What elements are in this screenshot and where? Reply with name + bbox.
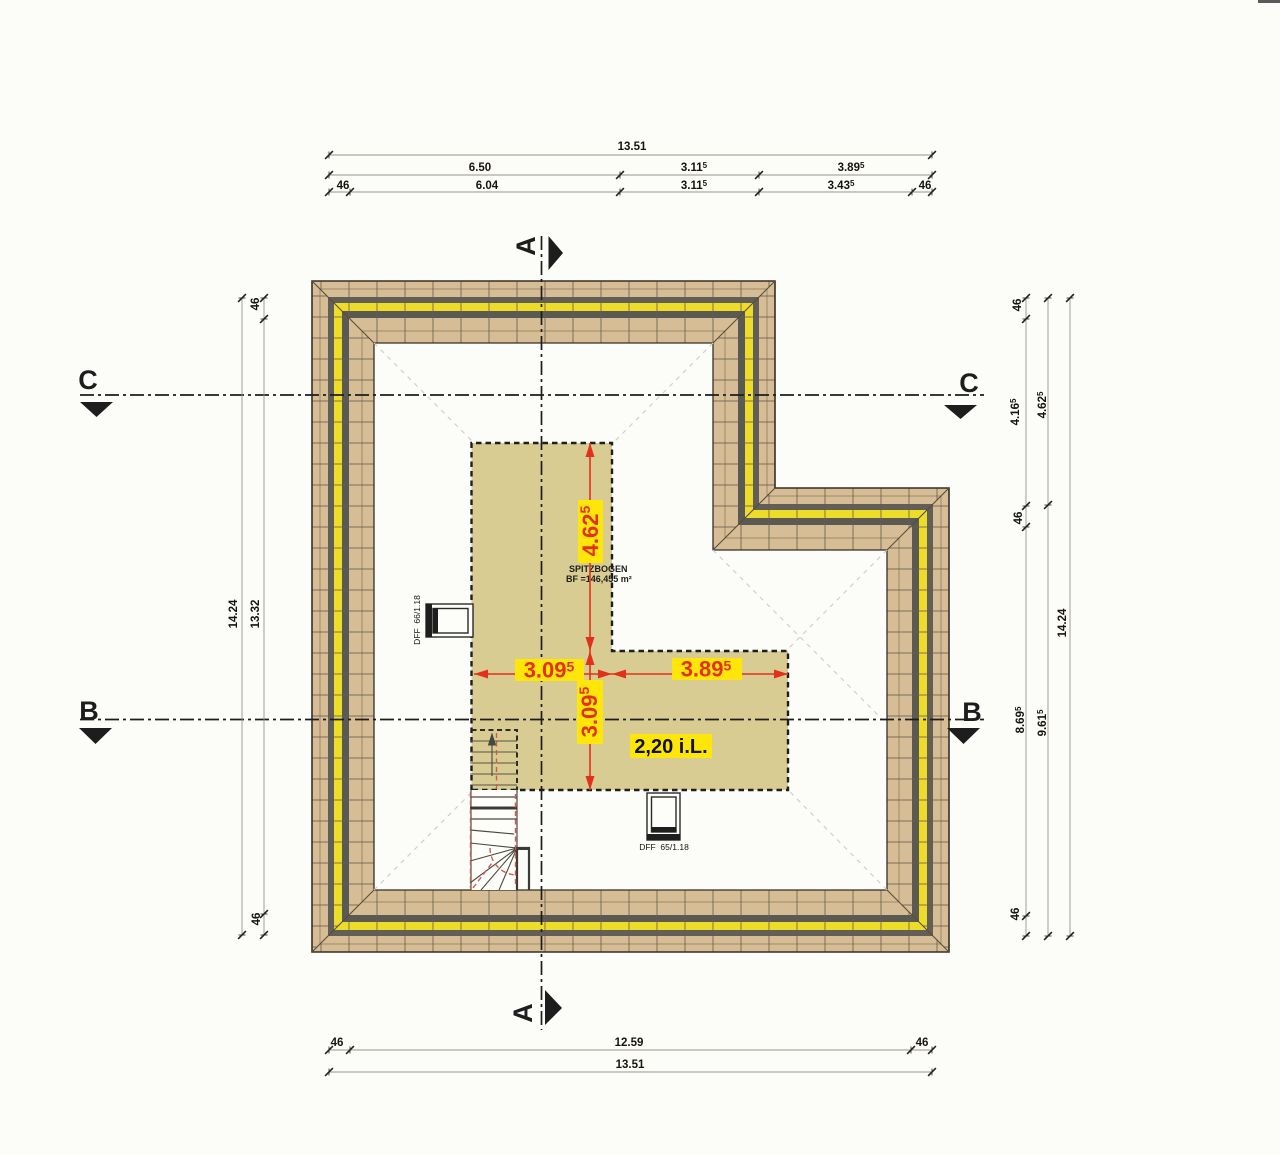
svg-text:6.04: 6.04 (476, 180, 499, 192)
svg-text:14.24: 14.24 (228, 599, 240, 628)
svg-text:13.32: 13.32 (250, 600, 262, 629)
svg-text:46: 46 (1012, 299, 1024, 312)
svg-text:46: 46 (916, 1037, 929, 1049)
svg-text:B: B (962, 697, 982, 727)
svg-text:13.51: 13.51 (618, 141, 647, 153)
svg-text:46: 46 (1013, 512, 1025, 525)
svg-text:SPITZBOGEN: SPITZBOGEN (569, 564, 628, 574)
svg-text:46: 46 (251, 913, 263, 926)
svg-text:A: A (511, 236, 541, 256)
svg-text:A: A (508, 1003, 538, 1023)
svg-text:12.59: 12.59 (615, 1037, 644, 1049)
svg-text:46: 46 (331, 1037, 344, 1049)
svg-text:DFF 66/1.18: DFF 66/1.18 (412, 595, 422, 645)
svg-text:DFF 65/1.18: DFF 65/1.18 (639, 842, 689, 852)
svg-text:2,20 i.L.: 2,20 i.L. (634, 736, 707, 758)
svg-text:14.24: 14.24 (1057, 608, 1069, 637)
svg-text:13.51: 13.51 (616, 1059, 645, 1071)
svg-text:46: 46 (919, 180, 932, 192)
svg-text:46: 46 (337, 180, 350, 192)
svg-text:C: C (959, 368, 979, 398)
svg-text:B: B (79, 696, 99, 726)
svg-text:BF =146,455 m²: BF =146,455 m² (566, 574, 632, 584)
svg-text:6.50: 6.50 (469, 162, 491, 174)
svg-text:46: 46 (1010, 908, 1022, 921)
svg-text:C: C (78, 365, 98, 395)
svg-text:46: 46 (250, 298, 262, 311)
